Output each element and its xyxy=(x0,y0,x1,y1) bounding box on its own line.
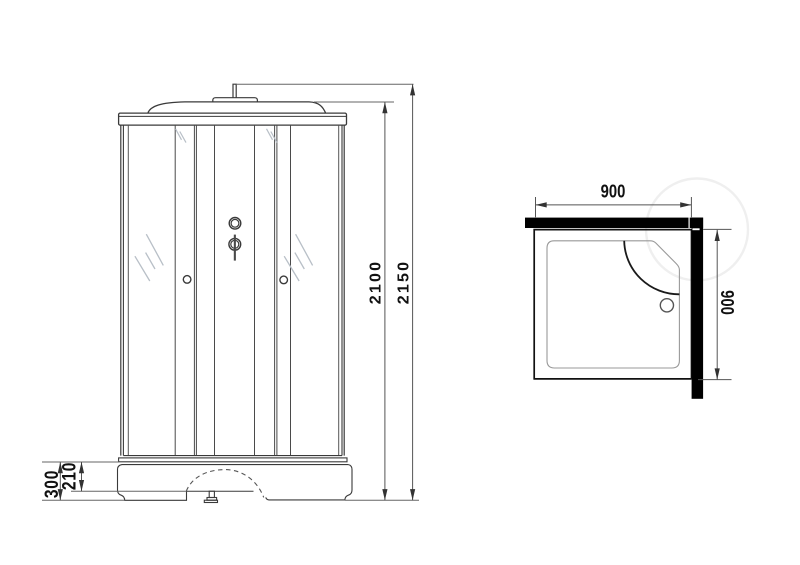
svg-text:900: 900 xyxy=(601,181,626,202)
svg-text:2100: 2100 xyxy=(368,260,385,304)
svg-text:210: 210 xyxy=(58,462,80,490)
svg-text:2150: 2150 xyxy=(396,260,413,304)
svg-text:900: 900 xyxy=(716,290,737,315)
